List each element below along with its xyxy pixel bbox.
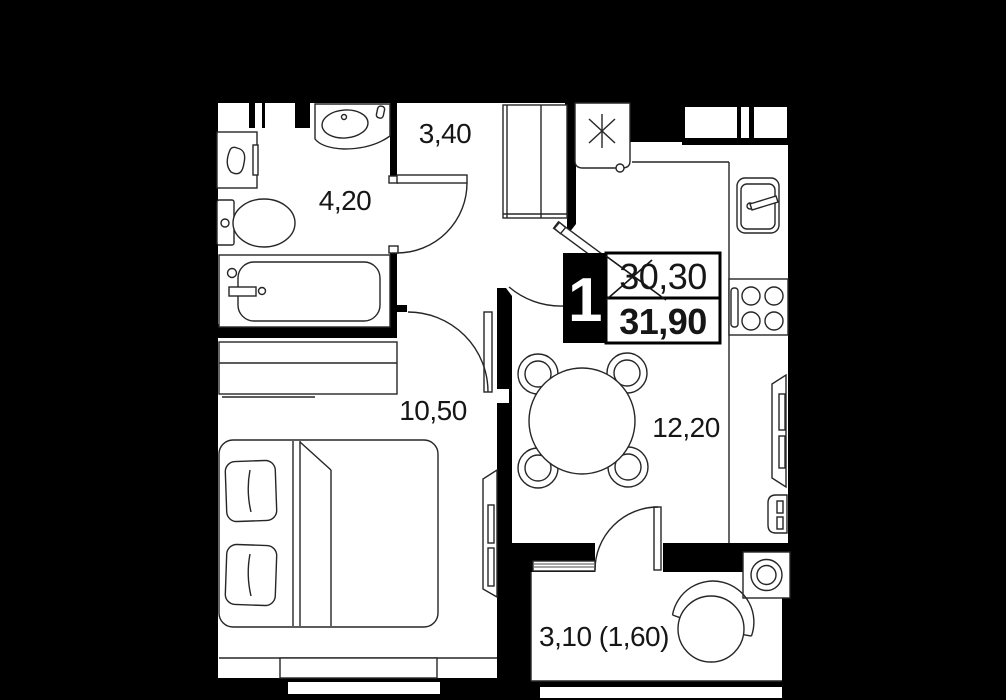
- niche-knob: [616, 164, 624, 172]
- badge-area-new: 31,90: [619, 301, 707, 342]
- bathroom-door-leaf: [397, 175, 467, 183]
- badge-rooms-count: 1: [568, 266, 602, 335]
- dresser: [219, 342, 397, 394]
- floor-plan-page: 1 30,30 31,90 3,40 4,20 10,50 12,20 3,10…: [0, 0, 1006, 700]
- pillow: [225, 460, 277, 522]
- bedroom-door-leaf: [484, 312, 492, 392]
- towel-rail: [253, 145, 258, 175]
- balcony-door-leaf: [654, 507, 661, 570]
- tv-living: [772, 375, 786, 487]
- wardrobe: [503, 105, 567, 218]
- bedroom-window-bay: [280, 658, 437, 678]
- balcony-window: [533, 561, 595, 571]
- label-bedroom: 10,50: [399, 395, 467, 426]
- kitchen-window-2: [754, 107, 787, 138]
- dining-set: [518, 353, 648, 488]
- label-kitchen-living: 12,20: [652, 412, 720, 443]
- bathtub-faucet: [228, 269, 237, 278]
- balcony-chair: [678, 596, 744, 662]
- bedroom-window-outer-sill: [288, 682, 440, 694]
- dining-table: [529, 368, 635, 474]
- toilet-bowl: [233, 199, 295, 247]
- balcony-door-opening: [595, 543, 663, 572]
- label-hallway: 3,40: [419, 118, 472, 149]
- pillow: [225, 544, 277, 606]
- floor-plan: 1 30,30 31,90 3,40 4,20 10,50 12,20 3,10…: [0, 0, 1006, 700]
- label-balcony: 3,10 (1,60): [539, 621, 669, 652]
- right-wall: [788, 103, 808, 543]
- towel-cabinet: [217, 132, 257, 188]
- kitchen-window: [685, 107, 737, 138]
- unit-area-badge: 1 30,30 31,90: [563, 253, 720, 343]
- label-bathroom: 4,20: [319, 185, 372, 216]
- kitchen-window-small: [741, 107, 749, 138]
- wall-niche: [496, 389, 509, 403]
